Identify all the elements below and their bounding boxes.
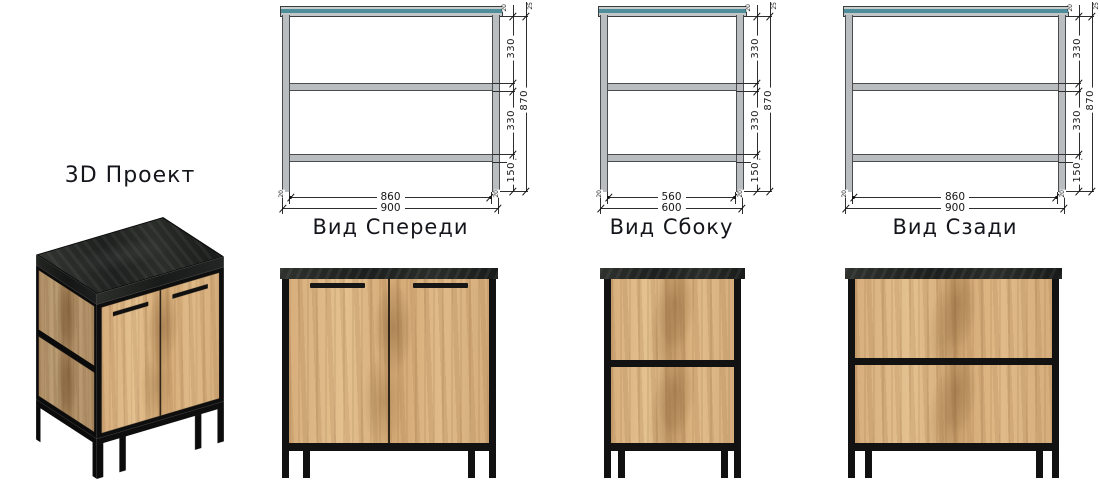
render-leg (1036, 451, 1043, 478)
render-panel-upper (611, 279, 734, 360)
dim-inner-width-line: 860 (853, 197, 1057, 198)
3d-leg (217, 407, 223, 443)
dim-label-330: 330 (751, 36, 763, 61)
3d-door-gap (160, 290, 162, 416)
3d-leg (97, 443, 103, 479)
drawing-post-right (736, 15, 744, 192)
tick (279, 205, 287, 213)
tick (1088, 188, 1096, 196)
3d-leg (119, 436, 125, 472)
tick (597, 205, 605, 213)
dim-label-top-thickness: 25 (528, 2, 534, 10)
render-panel-lower (611, 367, 734, 443)
dim-label-edge-right: 20 (494, 190, 500, 198)
dim-label-top-thickness: 25 (1094, 2, 1100, 10)
3d-door-handle-right (172, 284, 207, 299)
render-bottom-rail (848, 443, 1059, 451)
drawing-post-right (492, 15, 500, 192)
dim-label-150: 150 (507, 160, 519, 185)
render-top-slab (600, 268, 745, 279)
dim-label-150: 150 (751, 160, 763, 185)
dim-label-edge-left: 20 (842, 190, 848, 198)
drawing-side-view: 20 25 330 330 150 870 560 600 20 20 Вид … (598, 0, 806, 252)
drawing-rail-lower (290, 154, 492, 162)
render-leg (734, 451, 741, 478)
3d-leg (195, 414, 201, 450)
dim-outer-width-line: 900 (845, 208, 1065, 209)
render-top-slab (845, 268, 1062, 279)
tick (766, 188, 774, 196)
drawing-back-view: 20 25 330 330 150 870 860 900 20 20 Вид … (843, 0, 1100, 252)
drawing-rail-upper (853, 83, 1058, 91)
render-bottom-rail (282, 443, 496, 451)
drawing-post-right (1058, 15, 1066, 192)
dim-label-330: 330 (507, 108, 519, 133)
tick (522, 188, 530, 196)
render-bottom-rail (604, 443, 741, 451)
3d-door-handle-left (113, 302, 148, 317)
render-handle-right (413, 283, 468, 288)
view-title-front: Вид Спереди (280, 215, 501, 239)
render-middle-rail (604, 360, 741, 367)
render-leg (865, 451, 872, 478)
dim-dot (1055, 196, 1058, 199)
dim-label-330: 330 (1073, 36, 1085, 61)
dim-label-tube: 20 (1068, 4, 1074, 12)
design-sheet: 3D Проект (0, 0, 1100, 488)
render-frame-right (1052, 279, 1059, 451)
drawing-post-left (600, 15, 608, 192)
dim-label-330: 330 (507, 36, 519, 61)
render-handle-left (310, 283, 365, 288)
drawing-top-panel (598, 6, 747, 17)
3d-leg (36, 405, 40, 442)
dim-outer-width-line: 600 (600, 208, 743, 209)
drawing-top-panel (843, 6, 1069, 17)
render-leg (282, 451, 289, 478)
render-frame-left (282, 279, 289, 451)
dim-label-edge-right: 20 (1060, 190, 1066, 198)
dim-label-330: 330 (1073, 108, 1085, 133)
drawing-rail-upper (290, 83, 492, 91)
render-leg (604, 451, 611, 478)
dim-label-edge-left: 20 (279, 190, 285, 198)
render-door-gap (388, 279, 390, 443)
render-leg (848, 451, 855, 478)
render-frame-right (489, 279, 496, 451)
3d-cabinet-render (0, 196, 266, 488)
drawing-rail-lower (608, 154, 736, 162)
render-frame-left (848, 279, 855, 451)
render-middle-rail (848, 358, 1059, 365)
render-doors (289, 279, 489, 443)
dim-label-outer-width: 600 (657, 203, 685, 214)
render-leg (489, 451, 496, 478)
render-front-view (280, 266, 498, 478)
render-panel-lower (855, 365, 1052, 443)
drawing-top-panel (280, 6, 503, 17)
dim-dot (489, 196, 492, 199)
dim-label-edge-right: 20 (738, 190, 744, 198)
dim-label-tube: 20 (502, 4, 508, 12)
drawing-post-left (845, 15, 853, 192)
dim-inner-width-line: 860 (290, 197, 491, 198)
dim-label-870: 870 (1086, 88, 1098, 113)
render-leg (468, 451, 475, 478)
dim-label-outer-width: 900 (376, 203, 404, 214)
tick (842, 205, 850, 213)
dim-label-edge-left: 20 (597, 190, 603, 198)
dim-dot (289, 196, 292, 199)
dim-label-330: 330 (751, 108, 763, 133)
dim-label-outer-width: 900 (941, 203, 969, 214)
dim-dot (733, 196, 736, 199)
3d-project-title: 3D Проект (0, 163, 260, 188)
3d-cabinet-front-face (97, 257, 224, 479)
drawing-front-view: 20 25 330 330 150 870 860 900 20 20 Вид … (280, 0, 548, 252)
drawing-rail-lower (853, 154, 1058, 162)
dim-label-tube: 20 (746, 4, 752, 12)
dim-label-top-thickness: 25 (772, 2, 778, 10)
render-leg (721, 451, 728, 478)
dim-outer-width-line: 900 (282, 208, 499, 209)
dim-label-870: 870 (764, 88, 776, 113)
dim-dot (852, 196, 855, 199)
view-title-side: Вид Сбоку (598, 215, 745, 239)
dim-dot (607, 196, 610, 199)
dim-inner-width-line: 560 (608, 197, 735, 198)
render-leg (618, 451, 625, 478)
render-back-view (845, 266, 1062, 478)
render-top-slab (280, 268, 498, 279)
render-side-view (600, 266, 745, 478)
render-leg (1052, 451, 1059, 478)
drawing-post-left (282, 15, 290, 192)
drawing-rail-upper (608, 83, 736, 91)
dim-label-870: 870 (520, 88, 532, 113)
render-panel-upper (855, 279, 1052, 358)
view-title-back: Вид Сзади (843, 215, 1067, 239)
dim-label-150: 150 (1073, 160, 1085, 185)
render-leg (303, 451, 310, 478)
